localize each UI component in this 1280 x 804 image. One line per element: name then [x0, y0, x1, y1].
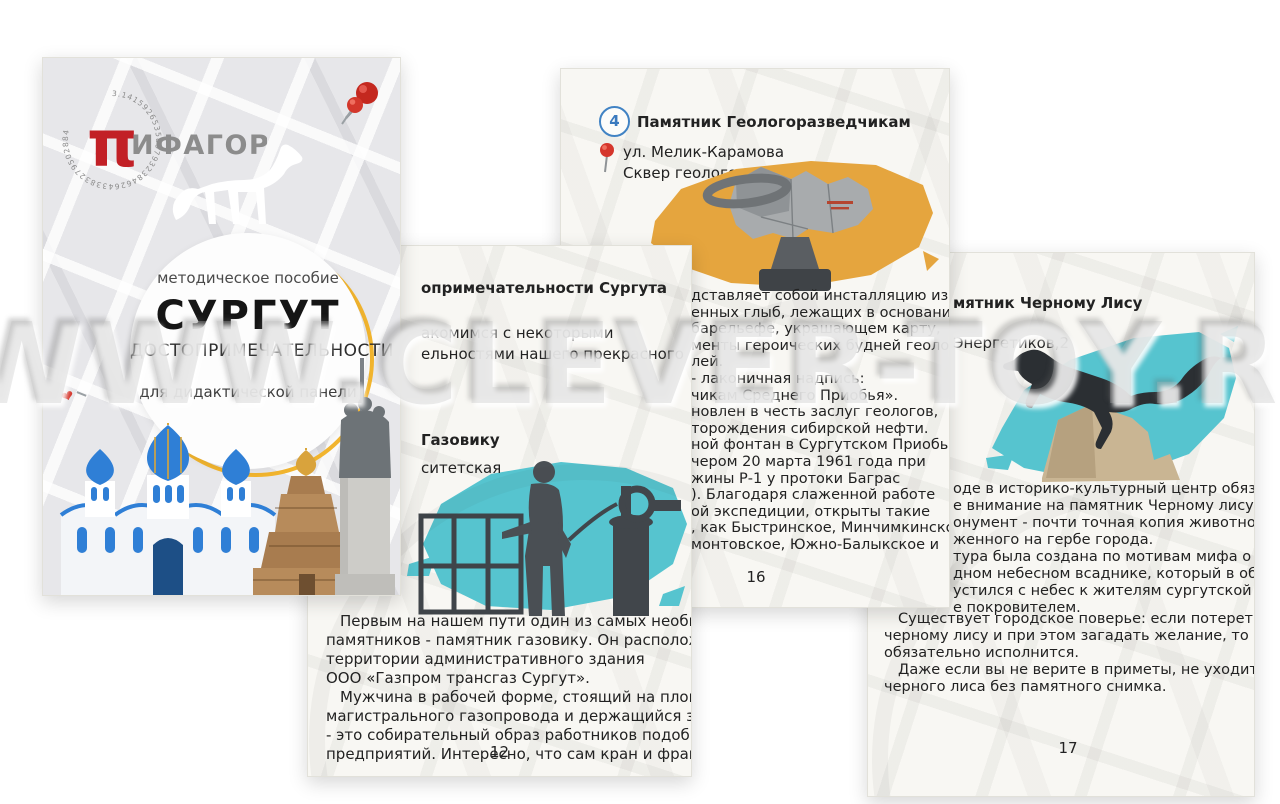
text-line: черного лиса без памятного снимка.	[884, 679, 1242, 696]
text-line: территории административного здания	[326, 650, 678, 669]
text-line: новлен в честь заслуг геологов,	[691, 404, 943, 421]
founders-monument-image	[329, 358, 400, 595]
text-line: торождения сибирской нефти.	[691, 421, 943, 438]
page12-intro-line: акомимся с некоторыми	[421, 324, 613, 342]
text-line: енных глыб, лежащих в основании	[691, 305, 943, 322]
heart-pin-icon: ❤	[59, 383, 86, 407]
page17-number: 17	[998, 739, 1138, 757]
text-line: оде в историко-культурный центр обязател…	[953, 481, 1253, 498]
page16-text: дставляет собой инсталляцию из енных глы…	[691, 288, 943, 554]
text-line: ). Благодаря слаженной работе	[691, 487, 943, 504]
left-dome	[85, 449, 115, 517]
route-number-badge: 4	[599, 106, 630, 137]
text-line: ной фонтан в Сургутском Приобье	[691, 437, 943, 454]
text-line: Первым на нашем пути один из самых необы…	[326, 612, 678, 631]
right-dome	[221, 449, 251, 517]
page16-number: 16	[691, 568, 821, 586]
text-line: Существует городское поверье: если потер…	[884, 611, 1242, 628]
booklet-cover: 3.141592653589793238462643383279502884 π…	[42, 57, 401, 596]
cover-series: методическое пособие	[130, 269, 366, 287]
text-line: чером 20 марта 1961 года при	[691, 454, 943, 471]
text-line: жины Р-1 у протоки Баграс	[691, 471, 943, 488]
text-line: черному лису и при этом загадать желание…	[884, 628, 1242, 645]
text-line: дставляет собой инсталляцию из	[691, 288, 943, 305]
text-line: менты героических будней геологов-	[691, 338, 943, 355]
text-line: чикам Среднего Приобья».	[691, 388, 943, 405]
cover-title: СУРГУТ	[130, 293, 366, 339]
page12-heading: опримечательности Сургута	[421, 279, 667, 297]
text-line: онумент - почти точная копия животного,	[953, 515, 1253, 532]
text-line: - лаконичная надпись:	[691, 371, 943, 388]
text-line: тура была создана по мотивам мифа о	[953, 549, 1253, 566]
page17-text-full: Существует городское поверье: если потер…	[884, 611, 1242, 696]
text-line: ООО «Газпром трансгаз Сургут».	[326, 669, 678, 688]
text-line: лей.	[691, 354, 943, 371]
page12-monument-title: Газовику	[421, 431, 500, 449]
red-pushpin-icon	[334, 76, 386, 128]
text-line: ой экспедиции, открыты такие	[691, 504, 943, 521]
page12-address: ситетская	[421, 459, 501, 477]
text-line: е внимание на памятник Черному лису.	[953, 498, 1253, 515]
text-line: обязательно исполнится.	[884, 645, 1242, 662]
text-line: , как Быстринское, Минчимкинское,	[691, 520, 943, 537]
statue-figures	[339, 397, 391, 478]
text-line: дном небесном всаднике, который в образе	[953, 566, 1253, 583]
white-fox-silhouette	[171, 120, 307, 232]
page12-text: Первым на нашем пути один из самых необы…	[326, 612, 678, 764]
text-line: памятников - памятник газовику. Он распо…	[326, 631, 678, 650]
text-line: магистрального газопровода и держащийся …	[326, 707, 678, 726]
map-pin-icon	[597, 141, 617, 175]
black-fox-monument-image	[984, 308, 1242, 486]
text-line: монтовское, Южно-Балыкское и	[691, 537, 943, 554]
page12-intro-line: ельностями нашего прекрасного	[421, 345, 684, 363]
text-line: барельефе, украшающем карту,	[691, 321, 943, 338]
central-dome	[147, 423, 189, 519]
text-line: устился с небес к жителям сургутской зем…	[953, 583, 1253, 600]
text-line: Мужчина в рабочей форме, стоящий на площ…	[326, 688, 678, 707]
page17-text-clipped: оде в историко-культурный центр обязател…	[953, 481, 1253, 617]
product-photo-stage: мятник Черному Лису Энергетиков,2 оде в …	[0, 0, 1280, 804]
text-line: женного на гербе города.	[953, 532, 1253, 549]
page16-title: Памятник Геологоразведчикам	[637, 113, 911, 131]
text-line: Даже если вы не верите в приметы, не ухо…	[884, 662, 1242, 679]
page12-number: 12	[308, 743, 691, 761]
